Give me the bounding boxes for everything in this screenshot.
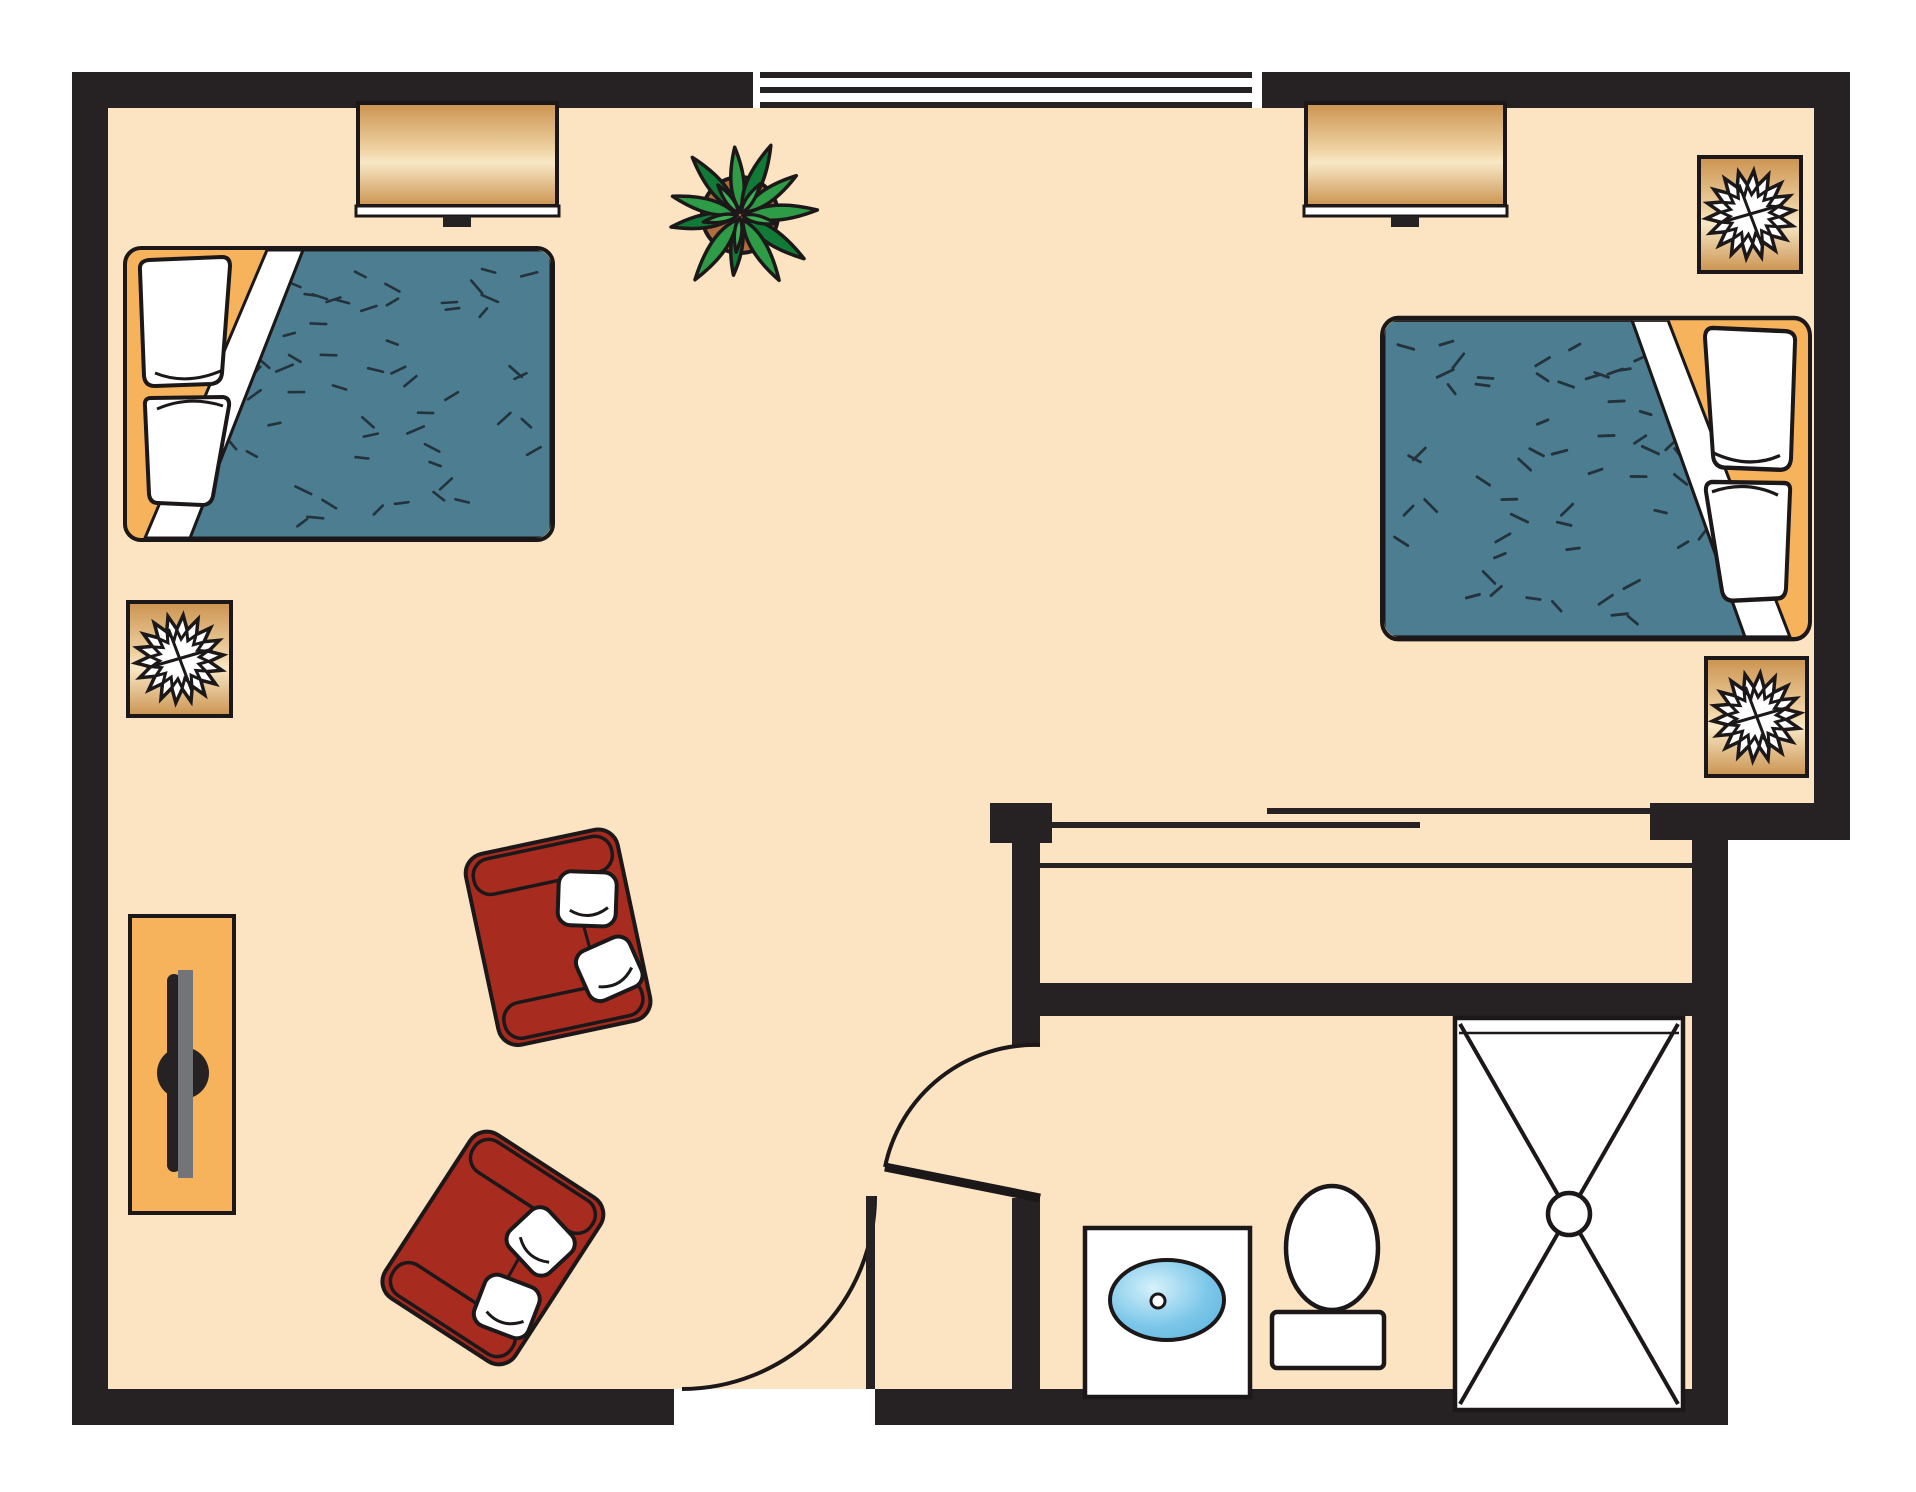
sink-drain <box>1151 1294 1165 1308</box>
tv-screen <box>178 970 193 1178</box>
dresser-left <box>356 103 559 227</box>
lamp-table-top-right <box>1699 157 1801 272</box>
left-wall <box>72 72 108 1425</box>
shower <box>1455 1018 1683 1410</box>
dresser-right <box>1304 103 1507 227</box>
step-wall <box>1650 803 1850 840</box>
sink-vanity <box>1085 1228 1250 1397</box>
shower-drain <box>1548 1193 1590 1235</box>
bed-right <box>1382 318 1810 639</box>
window <box>753 72 1262 108</box>
sink-basin <box>1110 1260 1224 1340</box>
lamp-table-left <box>128 602 231 716</box>
inner-right-wall <box>1692 803 1728 1425</box>
tv-console <box>130 916 234 1213</box>
toilet-bowl <box>1286 1186 1378 1310</box>
closet-back-wall <box>1012 983 1728 1016</box>
bathroom-wall-lower <box>1012 1198 1040 1425</box>
floor-plan <box>0 0 1916 1492</box>
floor-plan-page <box>0 0 1916 1492</box>
toilet-tank <box>1272 1312 1384 1368</box>
entry-door-opening <box>674 1389 875 1425</box>
sliding-door-panel <box>1052 822 1420 828</box>
bed-left <box>125 248 553 540</box>
sliding-door-panel <box>1267 808 1650 814</box>
closet-shelf-line <box>1040 863 1692 868</box>
door-leaf <box>866 1196 875 1389</box>
lamp-table-right <box>1706 658 1807 776</box>
right-wall <box>1814 72 1850 840</box>
